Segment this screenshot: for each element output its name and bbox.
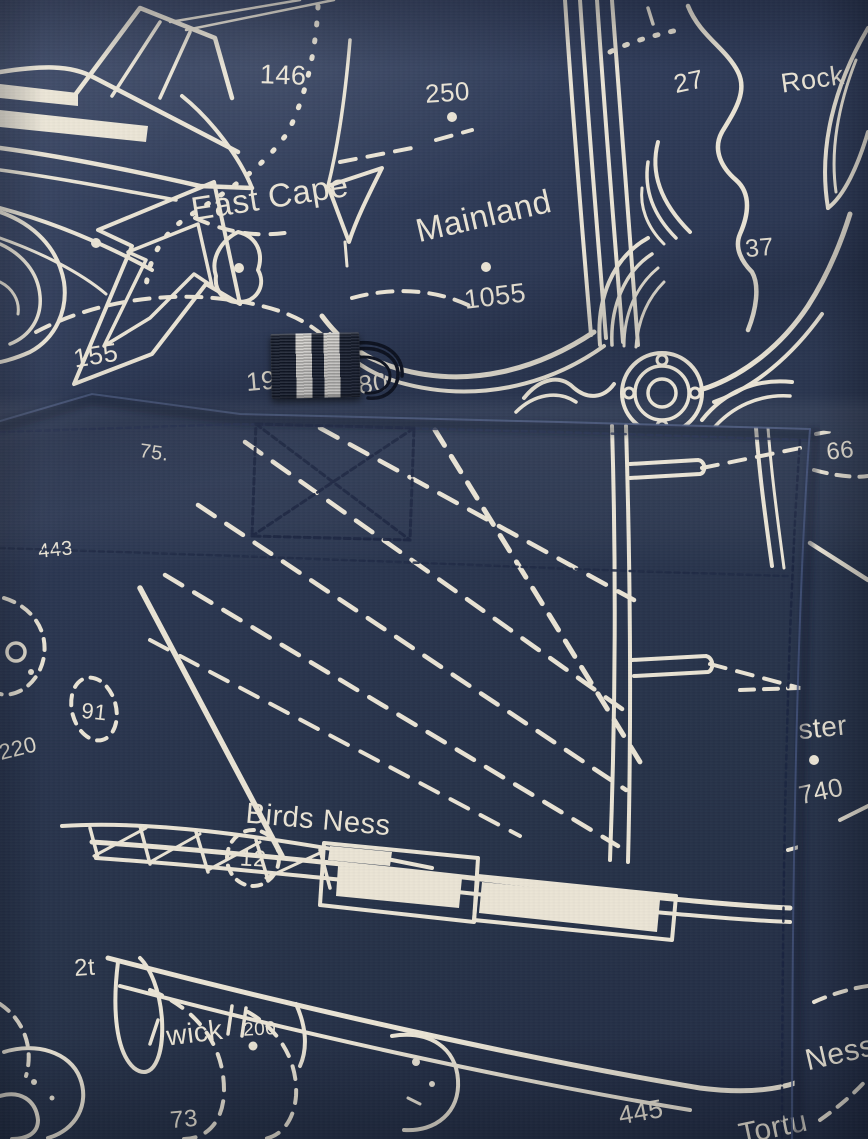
depth-75: 75.	[138, 440, 170, 466]
depth-73: 73	[169, 1105, 199, 1134]
fabric-photo: 146 250 East Cape Mainland 1055 27 Rock …	[0, 0, 868, 1139]
depth-1055: 1055	[462, 277, 527, 314]
junk-boat-illustration	[62, 426, 810, 1110]
depth-91: 91	[80, 698, 108, 726]
depth-220: 220	[0, 731, 39, 765]
depth-250: 250	[424, 76, 471, 109]
nautical-print-art: 146 250 East Cape Mainland 1055 27 Rock …	[0, 0, 868, 1139]
depth-2t: 2t	[73, 954, 96, 982]
striped-tab	[270, 332, 360, 399]
label-wick: wick	[164, 1014, 225, 1052]
depth-66: 66	[825, 436, 855, 466]
label-ness: Ness	[802, 1029, 868, 1077]
small-sail-motif	[328, 40, 382, 266]
depth-37: 37	[744, 233, 775, 263]
depth-445: 445	[616, 1093, 665, 1130]
label-east-cape: East Cape	[188, 166, 350, 227]
pocket-seams	[0, 394, 816, 1139]
pocket-chart-labels: 75. 443 91 220 Birds Ness 12 2t wick 200…	[0, 440, 665, 1134]
x-box-stitch	[252, 424, 414, 540]
label-mainland: Mainland	[412, 182, 555, 249]
depth-27: 27	[671, 63, 707, 99]
depth-146: 146	[259, 59, 307, 91]
depth-200: 200	[243, 1018, 277, 1041]
depth-12: 12	[239, 844, 267, 871]
label-rock: Rock	[779, 60, 846, 99]
